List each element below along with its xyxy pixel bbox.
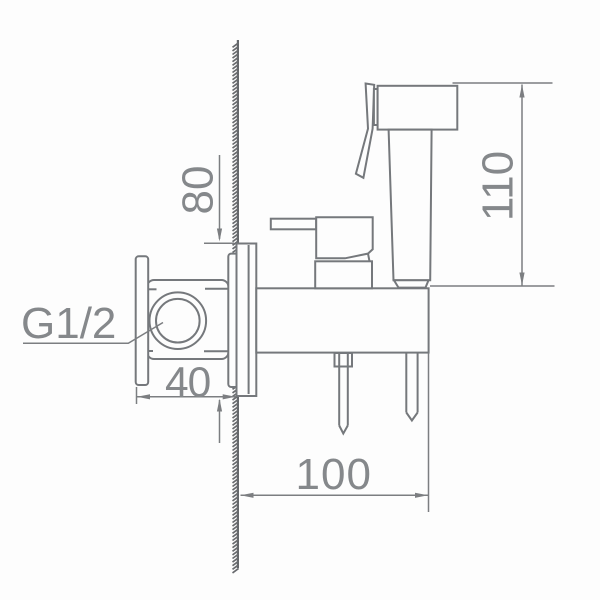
svg-text:80: 80 [174, 166, 223, 215]
svg-text:40: 40 [165, 359, 210, 406]
svg-text:110: 110 [474, 151, 523, 221]
svg-text:100: 100 [296, 450, 372, 499]
svg-text:G1/2: G1/2 [21, 299, 116, 348]
